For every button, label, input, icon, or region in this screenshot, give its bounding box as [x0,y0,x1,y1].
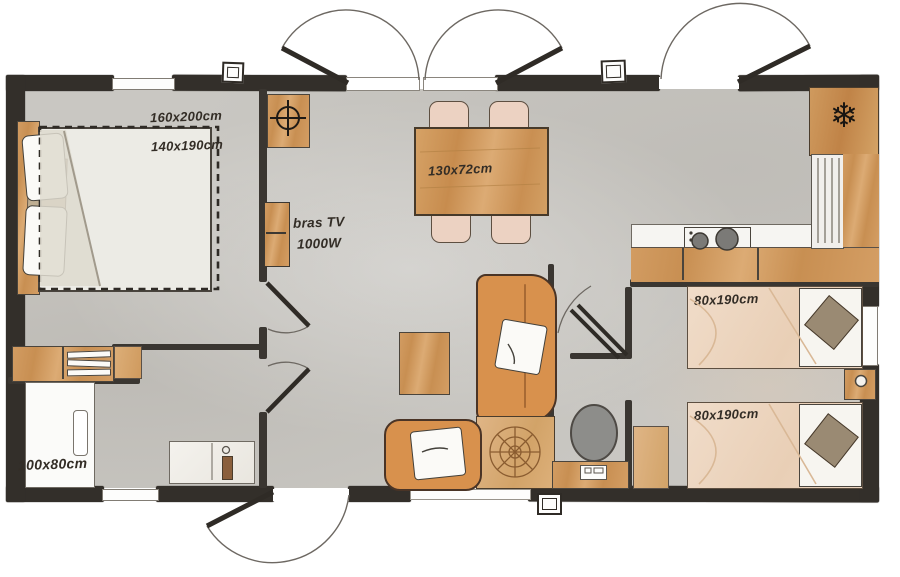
toilet [571,405,617,461]
door-leaf [267,283,309,326]
fridge-lines [818,158,839,243]
door-leaf [578,305,627,355]
door-leaf [282,48,348,83]
plan-linework [0,0,900,577]
door-leaf [738,46,810,82]
door-swing-arc [282,10,419,80]
door-swing-arc [425,10,562,80]
door-leaf [207,492,273,526]
burner [692,233,708,249]
door-swing-arc [268,362,309,369]
door-leaf [496,48,562,83]
bed-fold-lines [690,288,816,484]
door-swing-arc [661,3,810,79]
crosshair-icon [270,100,306,136]
door-swing-arc [207,495,349,563]
nightstand-knob [856,376,867,387]
door-leaf [571,310,619,358]
tap-knob [223,447,230,454]
table-web-decor [490,427,540,477]
floor-plan: 160x200cm 140x190cm 100x80cm bras TV 100… [0,0,900,577]
door-leaf [267,369,309,412]
door-swing-arc [268,326,309,333]
burner [716,228,738,250]
